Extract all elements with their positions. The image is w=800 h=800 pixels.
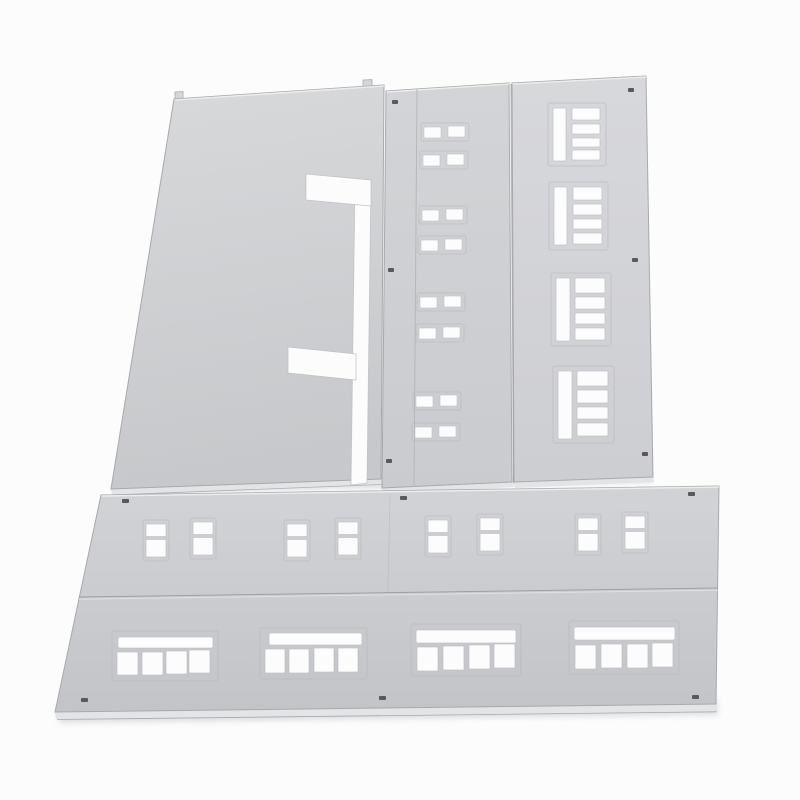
mold-hole [632, 258, 638, 262]
middle-panel [382, 83, 513, 494]
right-panel [511, 76, 654, 488]
mold-hole [392, 100, 398, 104]
two-pane-window-cutout [190, 518, 216, 559]
notch-cutout [306, 174, 371, 206]
small-window-cutout [445, 239, 462, 250]
mold-hole [400, 496, 407, 500]
mold-hole [692, 695, 699, 699]
small-window-cutout [420, 297, 437, 308]
small-window-cutout [424, 127, 441, 138]
mold-hole [628, 88, 634, 92]
two-pane-window-cutout [335, 518, 361, 559]
two-pane-window-cutout [622, 512, 648, 553]
mold-hole [386, 459, 392, 463]
small-window-cutout [439, 426, 456, 437]
two-pane-window-cutout [477, 514, 503, 555]
model-kit-panels-illustration [0, 0, 800, 800]
small-window-cutout [421, 240, 438, 251]
two-pane-window-cutout [143, 520, 169, 561]
small-window-cutout [416, 396, 433, 407]
bottom-panel [55, 486, 719, 720]
mold-hole [388, 268, 394, 272]
mold-hole [81, 698, 88, 702]
product-photo [0, 0, 800, 800]
small-window-cutout [440, 395, 457, 406]
two-pane-window-cutout [284, 520, 310, 561]
small-window-cutout [422, 210, 439, 221]
mold-hole [122, 499, 129, 503]
small-window-cutout [415, 427, 432, 438]
small-window-cutout [443, 327, 460, 338]
small-window-cutout [447, 154, 464, 165]
mold-hole [379, 696, 386, 700]
small-window-cutout [419, 328, 436, 339]
two-pane-window-cutout [425, 516, 451, 557]
small-window-cutout [423, 155, 440, 166]
mold-hole [642, 452, 648, 456]
small-window-cutout [446, 209, 463, 220]
two-pane-window-cutout [575, 514, 601, 555]
small-window-cutout [448, 126, 465, 137]
mold-hole [688, 492, 695, 496]
small-window-cutout [444, 296, 461, 307]
